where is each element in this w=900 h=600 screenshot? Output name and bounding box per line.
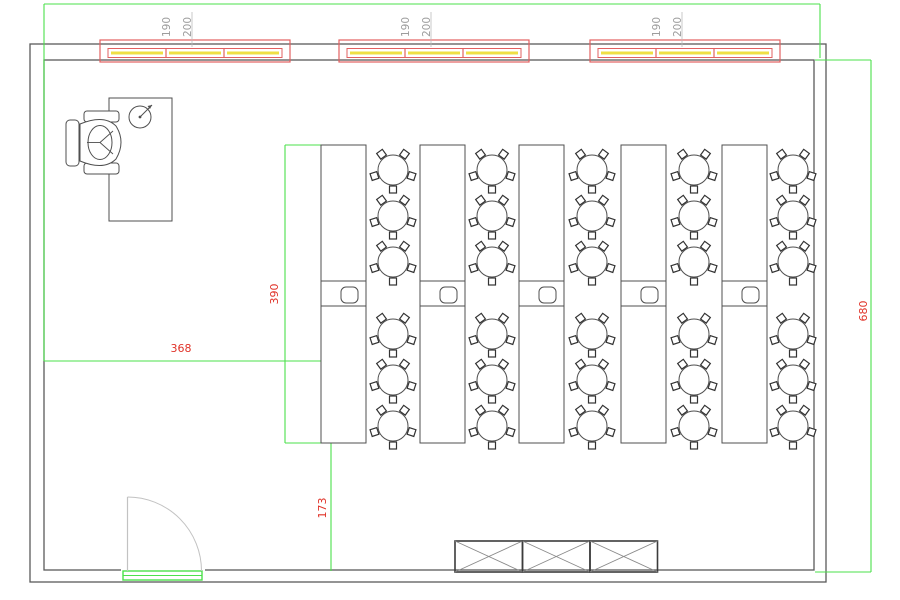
inner-wall bbox=[44, 60, 814, 570]
table-top bbox=[477, 247, 507, 277]
stool bbox=[569, 264, 578, 273]
stool bbox=[790, 442, 797, 449]
stool bbox=[469, 382, 478, 391]
table-top bbox=[679, 247, 709, 277]
outer-wall bbox=[30, 44, 826, 582]
table-top bbox=[679, 411, 709, 441]
floor-plan-svg: 190200190200190200 368 390 173 680 bbox=[0, 0, 900, 600]
round-table bbox=[370, 405, 416, 449]
walls-group bbox=[30, 44, 826, 582]
cabinet bbox=[523, 541, 591, 572]
cabinet bbox=[455, 541, 523, 572]
table-top bbox=[778, 319, 808, 349]
stool bbox=[370, 264, 379, 273]
round-table bbox=[770, 405, 816, 449]
stool bbox=[407, 218, 416, 227]
round-table bbox=[569, 359, 615, 403]
stool bbox=[489, 232, 496, 239]
table-top bbox=[378, 247, 408, 277]
teacher-station-group bbox=[66, 98, 172, 221]
lab-bench bbox=[321, 145, 366, 443]
door-swing-arc bbox=[128, 497, 202, 571]
round-table bbox=[370, 149, 416, 193]
round-table bbox=[770, 195, 816, 239]
round-table bbox=[770, 149, 816, 193]
stool bbox=[506, 428, 515, 437]
round-table bbox=[770, 313, 816, 357]
stool bbox=[671, 218, 680, 227]
table-top bbox=[378, 155, 408, 185]
round-table bbox=[671, 313, 717, 357]
table-top bbox=[477, 365, 507, 395]
stool bbox=[770, 428, 779, 437]
stool bbox=[589, 396, 596, 403]
stool bbox=[370, 218, 379, 227]
stool bbox=[506, 172, 515, 181]
table-top bbox=[679, 201, 709, 231]
door-group bbox=[121, 497, 205, 581]
stool bbox=[489, 186, 496, 193]
stool bbox=[489, 442, 496, 449]
bench-outline bbox=[420, 145, 465, 443]
cabinets-group bbox=[455, 541, 658, 572]
round-table bbox=[370, 359, 416, 403]
stool bbox=[807, 336, 816, 345]
dimension-label-390: 390 bbox=[268, 284, 281, 305]
bench-outline bbox=[722, 145, 767, 443]
bench-sink bbox=[440, 287, 457, 303]
stool bbox=[691, 232, 698, 239]
stool bbox=[589, 278, 596, 285]
stool bbox=[407, 264, 416, 273]
stool bbox=[671, 336, 680, 345]
table-top bbox=[778, 411, 808, 441]
table-top bbox=[778, 201, 808, 231]
window-height-label: 200 bbox=[182, 17, 194, 37]
stool bbox=[407, 428, 416, 437]
table-top bbox=[477, 319, 507, 349]
stool bbox=[489, 396, 496, 403]
stool bbox=[770, 218, 779, 227]
chair-backrest bbox=[66, 120, 79, 166]
stool bbox=[671, 172, 680, 181]
stool bbox=[390, 442, 397, 449]
bench-sink bbox=[742, 287, 759, 303]
stool bbox=[671, 264, 680, 273]
stool bbox=[691, 186, 698, 193]
stool bbox=[671, 382, 680, 391]
stool bbox=[569, 172, 578, 181]
stool bbox=[691, 350, 698, 357]
stool bbox=[407, 382, 416, 391]
bench-outline bbox=[621, 145, 666, 443]
round-table bbox=[569, 195, 615, 239]
round-table bbox=[469, 241, 515, 285]
table-top bbox=[378, 201, 408, 231]
round-table bbox=[671, 405, 717, 449]
stool bbox=[807, 428, 816, 437]
floor-plan-canvas: 190200190200190200 368 390 173 680 bbox=[0, 0, 900, 600]
stool bbox=[589, 186, 596, 193]
stool bbox=[370, 336, 379, 345]
stool bbox=[569, 218, 578, 227]
round-table bbox=[469, 359, 515, 403]
stool bbox=[708, 264, 717, 273]
bench-sink bbox=[641, 287, 658, 303]
dimension-label-680: 680 bbox=[857, 301, 870, 322]
table-top bbox=[577, 411, 607, 441]
tables-group bbox=[370, 149, 816, 449]
table-top bbox=[778, 365, 808, 395]
stool bbox=[790, 278, 797, 285]
round-table bbox=[671, 149, 717, 193]
stool bbox=[708, 218, 717, 227]
round-table bbox=[770, 359, 816, 403]
stool bbox=[770, 264, 779, 273]
stool bbox=[370, 382, 379, 391]
table-top bbox=[679, 365, 709, 395]
bench-outline bbox=[321, 145, 366, 443]
stool bbox=[790, 186, 797, 193]
window-frame bbox=[339, 40, 529, 62]
stool bbox=[708, 172, 717, 181]
stool bbox=[469, 336, 478, 345]
stool bbox=[606, 218, 615, 227]
stool bbox=[770, 172, 779, 181]
bench-outline bbox=[519, 145, 564, 443]
stool bbox=[489, 350, 496, 357]
table-top bbox=[477, 411, 507, 441]
stool bbox=[390, 278, 397, 285]
window: 190200 bbox=[100, 12, 290, 62]
stool bbox=[691, 442, 698, 449]
door-opening bbox=[121, 566, 205, 582]
dimension-label-173: 173 bbox=[316, 498, 329, 519]
lab-bench bbox=[722, 145, 767, 443]
table-top bbox=[778, 155, 808, 185]
round-table bbox=[370, 313, 416, 357]
cabinet bbox=[590, 541, 658, 572]
round-table bbox=[569, 241, 615, 285]
round-table bbox=[569, 149, 615, 193]
window-width-label: 190 bbox=[161, 17, 173, 37]
stool bbox=[671, 428, 680, 437]
stool bbox=[606, 336, 615, 345]
round-table bbox=[469, 313, 515, 357]
table-top bbox=[477, 155, 507, 185]
round-table bbox=[770, 241, 816, 285]
stool bbox=[790, 396, 797, 403]
teacher-chair bbox=[66, 111, 121, 174]
stool bbox=[708, 382, 717, 391]
stool bbox=[469, 172, 478, 181]
benches-group bbox=[321, 145, 767, 443]
round-table bbox=[569, 405, 615, 449]
stool bbox=[489, 278, 496, 285]
stool bbox=[606, 382, 615, 391]
stool bbox=[589, 442, 596, 449]
round-table bbox=[569, 313, 615, 357]
stool bbox=[506, 264, 515, 273]
stool bbox=[569, 336, 578, 345]
table-top bbox=[378, 411, 408, 441]
round-table bbox=[671, 241, 717, 285]
window: 190200 bbox=[590, 12, 780, 62]
stool bbox=[770, 336, 779, 345]
round-table bbox=[370, 195, 416, 239]
stool bbox=[691, 396, 698, 403]
dimension-lines-group bbox=[44, 4, 871, 572]
stool bbox=[807, 172, 816, 181]
stool bbox=[770, 382, 779, 391]
stool bbox=[790, 350, 797, 357]
table-top bbox=[577, 201, 607, 231]
stool bbox=[807, 264, 816, 273]
stool bbox=[569, 428, 578, 437]
table-top bbox=[679, 319, 709, 349]
stool bbox=[469, 218, 478, 227]
dimension-label-368: 368 bbox=[171, 342, 192, 355]
window: 190200 bbox=[339, 12, 529, 62]
stool bbox=[390, 186, 397, 193]
stool bbox=[589, 350, 596, 357]
table-top bbox=[378, 365, 408, 395]
lab-bench bbox=[420, 145, 465, 443]
window-height-label: 200 bbox=[421, 17, 433, 37]
window-frame bbox=[590, 40, 780, 62]
bench-sink bbox=[539, 287, 556, 303]
lab-bench bbox=[519, 145, 564, 443]
round-table bbox=[671, 195, 717, 239]
stool bbox=[506, 218, 515, 227]
stool bbox=[790, 232, 797, 239]
round-table bbox=[469, 149, 515, 193]
stool bbox=[606, 172, 615, 181]
stool bbox=[708, 336, 717, 345]
stool bbox=[589, 232, 596, 239]
table-top bbox=[477, 201, 507, 231]
window-height-label: 200 bbox=[672, 17, 684, 37]
window-width-label: 190 bbox=[400, 17, 412, 37]
stool bbox=[708, 428, 717, 437]
table-top bbox=[577, 155, 607, 185]
window-width-label: 190 bbox=[651, 17, 663, 37]
stool bbox=[469, 264, 478, 273]
stool bbox=[390, 350, 397, 357]
table-top bbox=[577, 319, 607, 349]
table-top bbox=[778, 247, 808, 277]
stool bbox=[569, 382, 578, 391]
stool bbox=[370, 428, 379, 437]
round-table bbox=[671, 359, 717, 403]
stool bbox=[807, 218, 816, 227]
table-top bbox=[577, 365, 607, 395]
windows-group: 190200190200190200 bbox=[100, 12, 780, 62]
table-top bbox=[577, 247, 607, 277]
stool bbox=[506, 382, 515, 391]
stool bbox=[469, 428, 478, 437]
stool bbox=[606, 264, 615, 273]
stool bbox=[390, 396, 397, 403]
bench-sink bbox=[341, 287, 358, 303]
stool bbox=[407, 172, 416, 181]
stool bbox=[506, 336, 515, 345]
stool bbox=[370, 172, 379, 181]
window-frame bbox=[100, 40, 290, 62]
round-table bbox=[370, 241, 416, 285]
stool bbox=[606, 428, 615, 437]
stool bbox=[807, 382, 816, 391]
table-top bbox=[378, 319, 408, 349]
round-table bbox=[469, 195, 515, 239]
round-table bbox=[469, 405, 515, 449]
lab-bench bbox=[621, 145, 666, 443]
stool bbox=[390, 232, 397, 239]
stool bbox=[407, 336, 416, 345]
table-top bbox=[679, 155, 709, 185]
stool bbox=[691, 278, 698, 285]
